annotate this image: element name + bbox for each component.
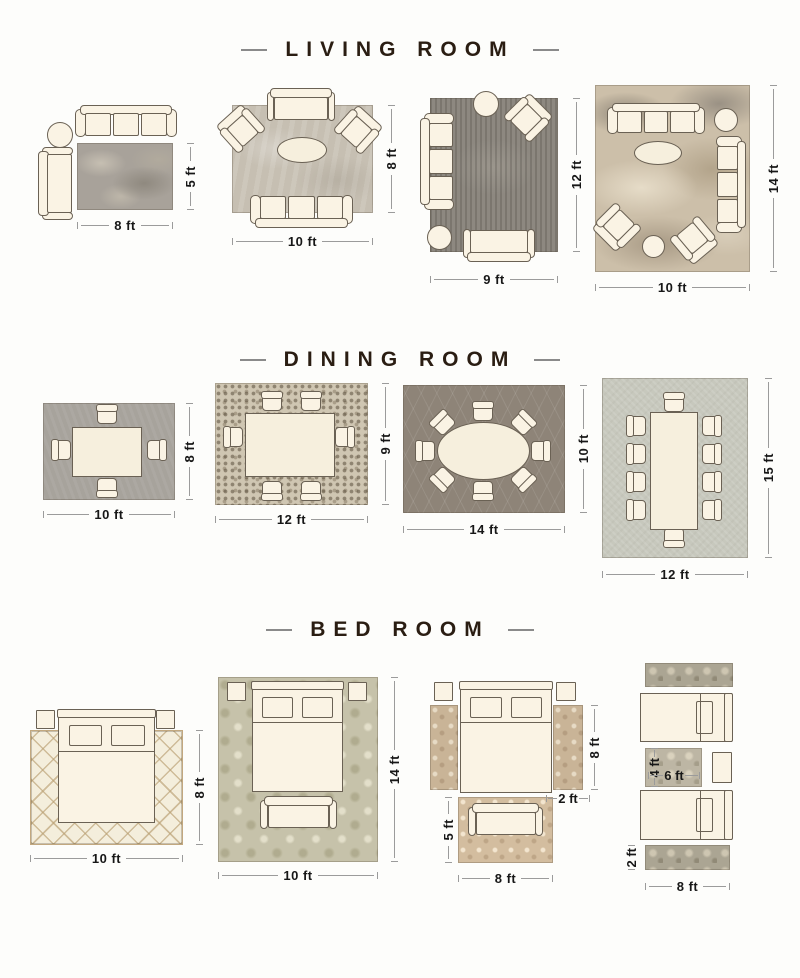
sofa — [75, 105, 177, 137]
bed — [252, 682, 343, 792]
blanket-seam — [253, 722, 342, 723]
cushion — [470, 230, 528, 253]
pillow — [302, 697, 333, 718]
blanket-seam — [700, 694, 701, 741]
cushion — [617, 111, 642, 133]
rug-size-guide: LIVING ROOM 8 ft 5 ft — [0, 0, 800, 978]
runner-length-label: 8 ft — [587, 735, 602, 761]
dining-chair — [702, 416, 718, 436]
nightstand — [36, 710, 55, 729]
cushion — [717, 199, 738, 224]
rug-height-dimension: 8 ft — [383, 105, 399, 213]
runner-length-dimension: 8 ft — [586, 705, 602, 790]
dining-chair — [301, 481, 321, 497]
dining-chair — [664, 528, 684, 544]
runner-width-label: 2 ft — [624, 848, 639, 868]
height-label: 8 ft — [384, 146, 399, 172]
width-label: 9 ft — [481, 272, 507, 287]
bedroom-layout-twin-runners: 4 ft 6 ft 2 ft 8 ft — [615, 650, 800, 895]
blanket-seam — [461, 722, 551, 723]
dining-chair — [664, 396, 684, 412]
width-label: 12 ft — [275, 512, 308, 527]
cushion — [644, 111, 669, 133]
side-table — [47, 122, 73, 148]
width-label: 10 ft — [90, 851, 123, 866]
height-label: 9 ft — [378, 431, 393, 457]
pillow — [511, 697, 543, 718]
dining-chair — [419, 441, 435, 461]
bench — [260, 796, 337, 829]
headboard — [459, 681, 553, 690]
dining-chair — [147, 440, 163, 460]
cushion — [85, 113, 111, 135]
nightstand — [348, 682, 367, 701]
bed-room-title: BED ROOM — [0, 618, 800, 642]
section-heading: LIVING ROOM — [285, 38, 514, 62]
rug-height-dimension: 8 ft — [181, 403, 197, 500]
cushion — [429, 149, 453, 174]
cushion — [717, 146, 738, 171]
headboard — [57, 709, 156, 718]
living-layout-10x8: 10 ft 8 ft — [215, 85, 400, 250]
living-layout-9x12: 9 ft 12 ft — [405, 85, 595, 290]
coffee-table — [634, 141, 682, 165]
dining-table — [72, 427, 142, 477]
rug-width-dimension: 10 ft — [43, 506, 175, 522]
height-label: 14 ft — [387, 753, 402, 786]
sofa — [250, 195, 353, 228]
runner-rug — [645, 845, 730, 870]
dining-chair — [630, 416, 646, 436]
dining-layout-10x8: 10 ft 8 ft — [25, 390, 205, 525]
foot-rug-height-dimension: 5 ft — [440, 797, 456, 863]
title-rule — [266, 629, 292, 631]
dining-chair — [301, 395, 321, 411]
headboard — [724, 790, 733, 840]
dining-chair — [55, 440, 71, 460]
cushion — [141, 113, 167, 135]
rug-width-dimension: 9 ft — [430, 271, 558, 287]
twin-bed — [640, 693, 732, 742]
foot-rug-height-label: 5 ft — [441, 817, 456, 843]
cushion — [717, 172, 738, 197]
rug-height-dimension: 15 ft — [760, 378, 776, 558]
dining-chair — [702, 500, 718, 520]
sofa-back — [255, 218, 348, 228]
sofa — [607, 103, 705, 134]
pillow — [696, 701, 713, 735]
dining-table — [245, 413, 335, 477]
pillow — [470, 697, 502, 718]
rug-height-dimension: 12 ft — [568, 98, 584, 252]
height-label: 8 ft — [182, 439, 197, 465]
cushion — [260, 196, 286, 219]
side-table — [714, 108, 738, 132]
dining-chair — [262, 395, 282, 411]
dining-table — [437, 422, 530, 480]
ottoman — [642, 235, 665, 258]
rug-height-dimension: 9 ft — [377, 383, 393, 505]
title-rule — [241, 49, 267, 51]
cushion — [317, 196, 343, 219]
dining-chair — [262, 481, 282, 497]
height-label: 14 ft — [766, 162, 781, 195]
bedroom-layout-runners: 8 ft 2 ft 5 ft 8 ft — [420, 670, 605, 890]
living-layout-8x5: 8 ft 5 ft — [30, 95, 205, 245]
headboard — [724, 693, 733, 742]
width-label: 10 ft — [92, 507, 125, 522]
title-rule — [240, 359, 266, 361]
width-label: 8 ft — [112, 218, 138, 233]
rug-width-dimension: 10 ft — [232, 233, 373, 249]
runner-width-dimension: 2 ft — [623, 845, 639, 870]
dining-chair — [473, 405, 493, 421]
title-rule — [534, 359, 560, 361]
bed — [58, 710, 155, 823]
width-label: 10 ft — [286, 234, 319, 249]
cushion — [288, 196, 314, 219]
cushion — [429, 176, 453, 201]
nightstand — [712, 752, 732, 783]
runner-width-label: 2 ft — [558, 791, 578, 806]
dining-chair — [97, 408, 117, 424]
height-label: 12 ft — [569, 158, 584, 191]
cushion — [429, 123, 453, 148]
dining-chair — [473, 481, 493, 497]
rug-width-dimension: 10 ft — [218, 867, 378, 883]
cushion — [274, 97, 328, 120]
between-rug-width-label: 6 ft — [664, 768, 684, 783]
title-rule — [533, 49, 559, 51]
dining-chair — [227, 427, 243, 447]
dining-room-title: DINING ROOM — [0, 348, 800, 372]
nightstand — [156, 710, 175, 729]
area-rug — [77, 143, 173, 210]
rug-height-dimension: 14 ft — [386, 677, 402, 862]
width-label: 12 ft — [658, 567, 691, 582]
runner-width-dimension: 2 ft — [546, 790, 590, 806]
foot-rug-width-dimension: 8 ft — [458, 870, 553, 886]
pillow — [696, 798, 713, 833]
height-label: 10 ft — [576, 432, 591, 465]
cushion — [47, 154, 72, 212]
runner-length-label: 8 ft — [675, 879, 701, 894]
rug-width-dimension: 12 ft — [602, 566, 748, 582]
runner-rug — [430, 705, 458, 790]
height-label: 15 ft — [761, 451, 776, 484]
dining-chair — [335, 427, 351, 447]
rug-width-dimension: 10 ft — [595, 279, 750, 295]
between-rug-width-dimension: 6 ft — [648, 767, 700, 783]
dining-layout-12x9: 12 ft 9 ft — [205, 375, 395, 530]
nightstand — [227, 682, 246, 701]
foot-rug-width-label: 8 ft — [493, 871, 519, 886]
blanket-seam — [700, 791, 701, 839]
bench — [468, 803, 543, 836]
pillow — [262, 697, 293, 718]
twin-bed — [640, 790, 732, 840]
runner-rug — [553, 705, 583, 790]
pillow — [111, 725, 144, 746]
runner-length-dimension: 8 ft — [645, 878, 730, 894]
cushion — [476, 812, 536, 835]
section-heading: DINING ROOM — [284, 348, 517, 372]
blanket-seam — [59, 751, 154, 752]
dining-layout-12x15: 12 ft 15 ft — [590, 370, 790, 590]
coffee-table — [277, 137, 327, 163]
width-label: 14 ft — [467, 522, 500, 537]
side-table — [473, 91, 499, 117]
rug-width-dimension: 8 ft — [77, 217, 173, 233]
cushion — [268, 805, 330, 828]
width-label: 10 ft — [656, 280, 689, 295]
pillow — [69, 725, 102, 746]
ottoman — [427, 225, 452, 250]
dining-chair — [702, 472, 718, 492]
sofa-back — [737, 141, 746, 228]
sofa — [420, 113, 454, 210]
cushion — [670, 111, 695, 133]
dining-layout-14x10: 14 ft 10 ft — [395, 375, 595, 540]
rug-width-dimension: 14 ft — [403, 521, 565, 537]
nightstand — [434, 682, 453, 701]
height-label: 5 ft — [183, 164, 198, 190]
dining-chair — [702, 444, 718, 464]
cushion — [113, 113, 139, 135]
section-heading: BED ROOM — [310, 618, 490, 642]
dining-chair — [97, 478, 117, 494]
loveseat — [463, 229, 535, 262]
dining-chair — [630, 444, 646, 464]
living-room-title: LIVING ROOM — [0, 38, 800, 62]
width-label: 10 ft — [281, 868, 314, 883]
bedroom-layout-10x14: 10 ft 14 ft — [200, 655, 400, 885]
rug-height-dimension: 14 ft — [765, 85, 781, 272]
dining-chair — [630, 472, 646, 492]
chaise — [38, 147, 73, 220]
sofa-back — [467, 252, 532, 262]
nightstand — [556, 682, 576, 701]
sofa — [716, 136, 746, 233]
rug-height-dimension: 10 ft — [575, 385, 591, 513]
bedroom-layout-10x8: 10 ft 8 ft — [15, 690, 215, 870]
bed — [460, 682, 552, 793]
dining-table — [650, 412, 698, 530]
rug-width-dimension: 10 ft — [30, 850, 183, 866]
headboard — [251, 681, 344, 690]
title-rule — [508, 629, 534, 631]
dining-chair — [630, 500, 646, 520]
runner-rug — [645, 663, 733, 687]
loveseat — [267, 88, 335, 121]
dining-chair — [531, 441, 547, 461]
living-layout-10x14: 10 ft 14 ft — [585, 75, 790, 305]
rug-height-dimension: 5 ft — [182, 143, 198, 210]
rug-width-dimension: 12 ft — [215, 511, 368, 527]
